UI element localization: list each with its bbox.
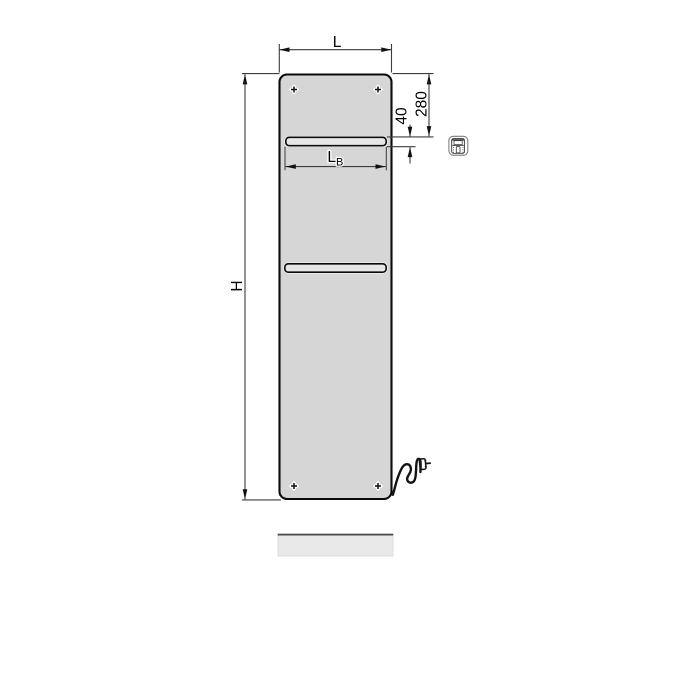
svg-text:H: H: [229, 280, 246, 291]
svg-text:40: 40: [394, 107, 411, 125]
svg-text:280: 280: [414, 91, 431, 117]
svg-text:L: L: [333, 34, 342, 51]
